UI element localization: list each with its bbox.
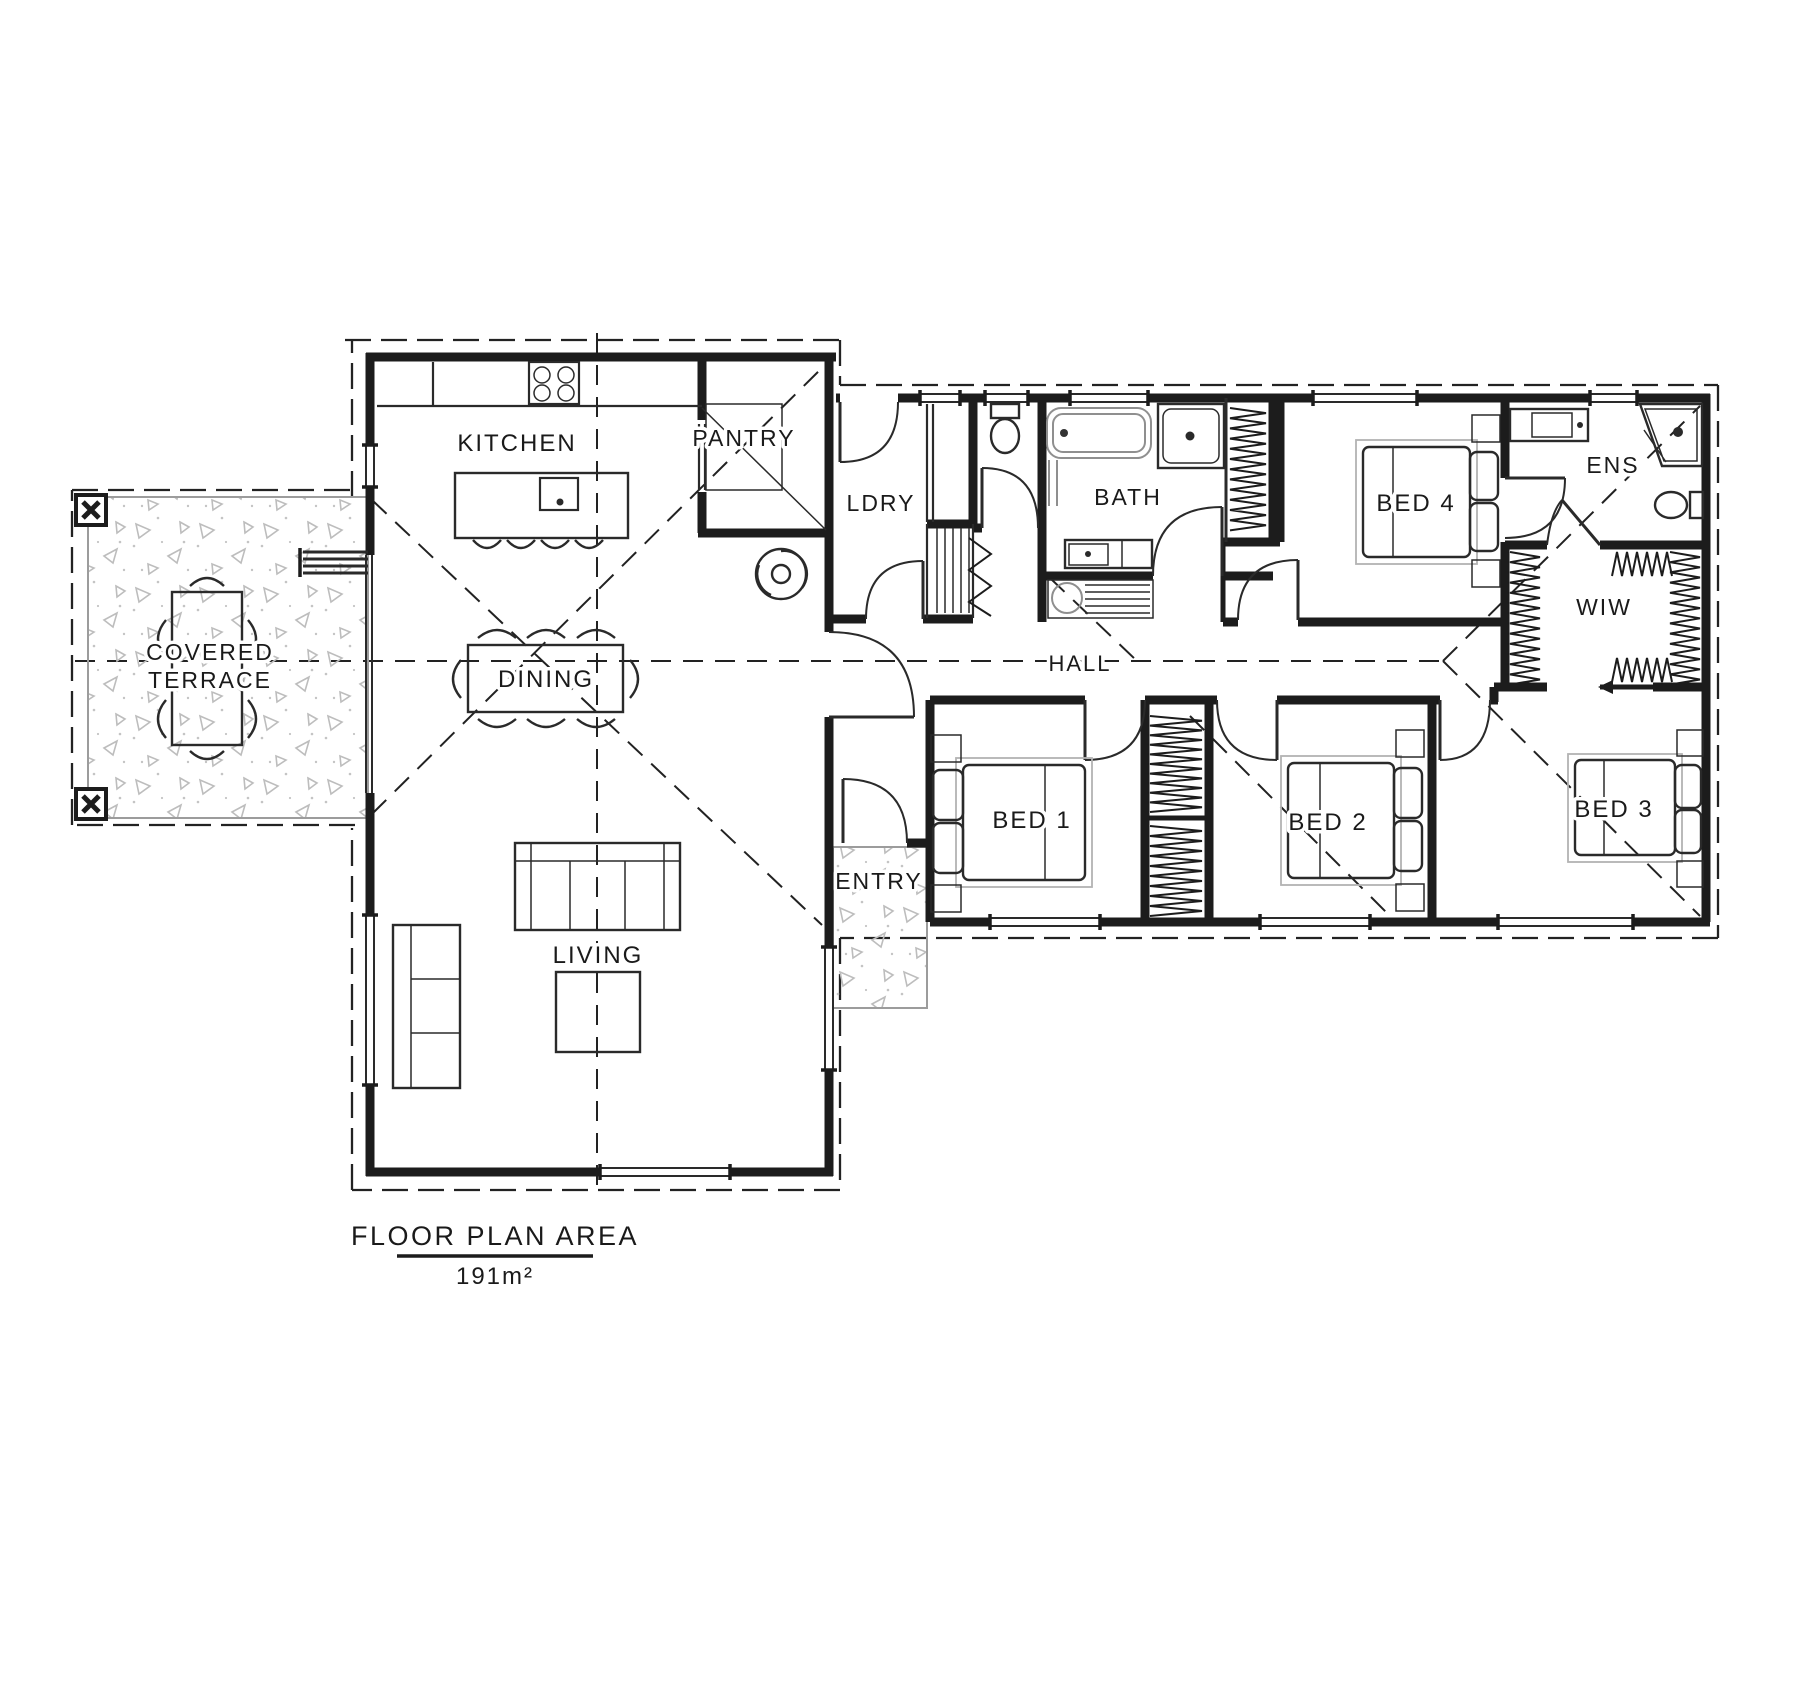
wiw-rail-top-icon — [1612, 552, 1672, 576]
wiw-rail-right-icon — [1670, 552, 1700, 685]
column-post-icon — [76, 495, 106, 525]
plan-title: FLOOR PLAN AREA — [351, 1221, 639, 1251]
toilet-icon — [1655, 492, 1703, 518]
room-label-bed1: BED 1 — [992, 807, 1071, 834]
bed3-door — [1440, 700, 1490, 760]
plan-area-value: 191m² — [456, 1263, 534, 1290]
laundry-external-door — [840, 402, 898, 462]
beds — [931, 415, 1703, 912]
linen-shelves — [927, 524, 973, 618]
room-label-bed3: BED 3 — [1574, 796, 1653, 823]
sofa-icon — [393, 925, 460, 1088]
vanity-icon — [1065, 540, 1152, 568]
room-label-terrace-line2: TERRACE — [148, 667, 272, 693]
title-block: FLOOR PLAN AREA 191m² — [351, 1221, 639, 1290]
bed1-door — [1085, 700, 1145, 760]
laundry-hall-door — [866, 561, 923, 619]
closet-rail-icon — [1150, 826, 1202, 916]
wiw-slider-icon — [1598, 680, 1653, 694]
toilet-icon — [991, 404, 1019, 453]
room-label-ens: ENS — [1586, 452, 1639, 478]
bed4-door — [1238, 560, 1298, 620]
ceiling-fan-icon — [756, 549, 807, 599]
room-label-entry: ENTRY — [835, 868, 923, 894]
bathroom-fixtures — [927, 404, 1266, 618]
kitchen-fittings — [377, 362, 826, 599]
room-label-bed2: BED 2 — [1288, 809, 1367, 836]
floor-plan-canvas: KITCHEN PANTRY LDRY BATH BED 4 ENS WIW H… — [0, 0, 1800, 1693]
wiw-rail-left-icon — [1510, 552, 1540, 685]
room-label-pantry: PANTRY — [692, 425, 795, 451]
room-label-kitchen: KITCHEN — [457, 430, 576, 457]
bath-door — [1153, 507, 1222, 576]
room-label-terrace-line1: COVERED — [146, 639, 274, 665]
laundry-slider-icon — [927, 404, 933, 522]
stool-icons — [473, 540, 603, 548]
closet-rail-icon — [1150, 716, 1202, 812]
bathtub-icon — [1047, 408, 1151, 458]
pantry-shelving — [702, 404, 826, 530]
room-label-bed4: BED 4 — [1376, 490, 1455, 517]
room-label-living: LIVING — [553, 942, 644, 969]
room-label-hall: HALL — [1048, 651, 1111, 676]
ens-door — [1547, 500, 1600, 545]
shower-icon — [1158, 404, 1224, 468]
floor-plan-page: KITCHEN PANTRY LDRY BATH BED 4 ENS WIW H… — [0, 0, 1800, 1693]
wc-door — [982, 468, 1038, 528]
room-label-laundry: LDRY — [847, 490, 916, 516]
hall-cupboard — [1048, 580, 1153, 618]
front-door — [843, 779, 907, 843]
linen-rail-icon — [1230, 408, 1266, 530]
cooktop-icon — [529, 362, 579, 404]
island-bench — [455, 473, 628, 548]
towel-rail-icon — [1049, 460, 1057, 506]
column-post-icon — [76, 789, 106, 819]
room-label-wiw: WIW — [1576, 594, 1632, 620]
hall-lobby-door — [829, 632, 914, 717]
vanity-icon — [1510, 409, 1588, 441]
wiw-rail-bottom-icon — [1612, 658, 1672, 682]
kitchen-bench — [377, 362, 702, 406]
room-label-dining: DINING — [498, 666, 594, 693]
room-label-bath: BATH — [1094, 484, 1162, 510]
